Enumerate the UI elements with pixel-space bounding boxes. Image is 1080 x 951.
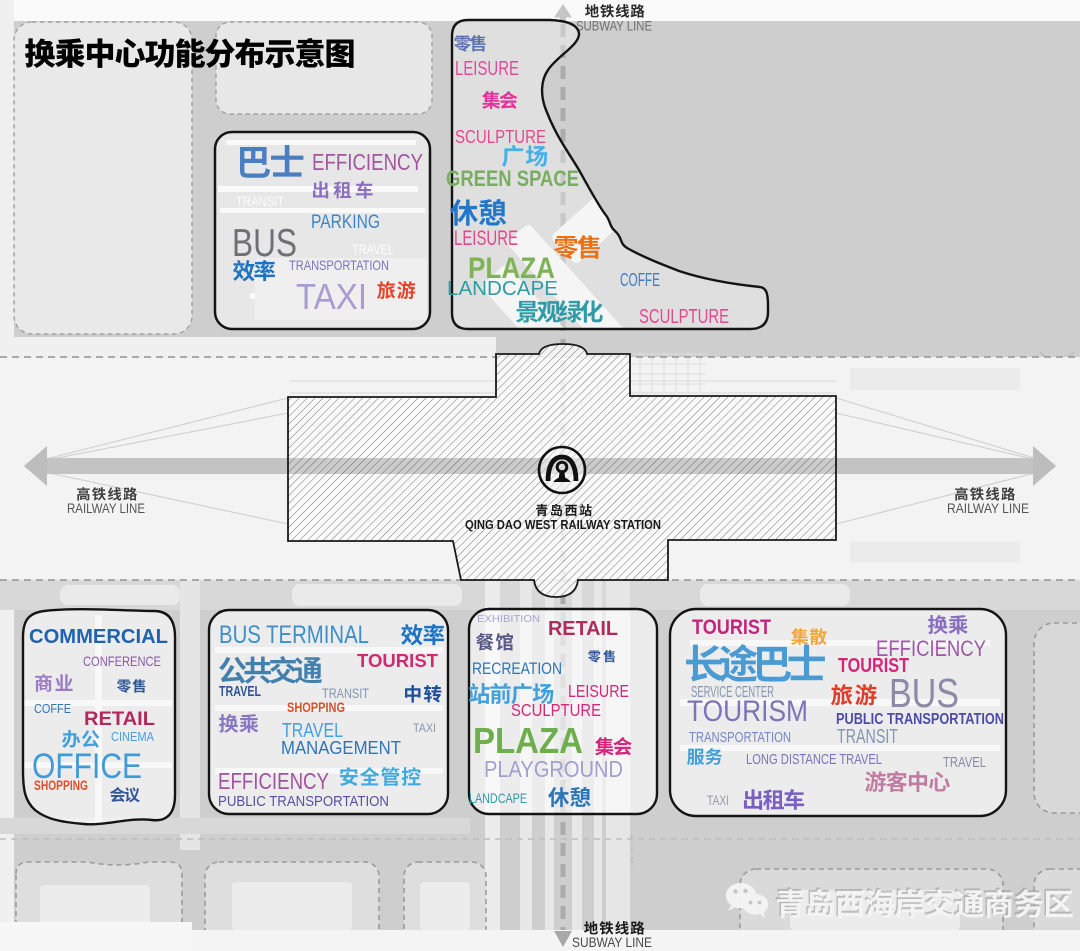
svg-text:SCULPTURE: SCULPTURE	[455, 127, 546, 147]
svg-text:BUS: BUS	[889, 670, 959, 716]
svg-text:COMMERCIAL: COMMERCIAL	[29, 625, 168, 648]
svg-text:EFFICIENCY: EFFICIENCY	[312, 149, 423, 175]
svg-text:LANDCAPE: LANDCAPE	[469, 791, 527, 806]
svg-text:RAILWAY LINE: RAILWAY LINE	[947, 501, 1029, 516]
svg-text:TAXI: TAXI	[707, 792, 729, 808]
svg-text:CONFERENCE: CONFERENCE	[83, 653, 161, 669]
svg-text:RETAIL: RETAIL	[84, 708, 155, 730]
svg-text:CINEMA: CINEMA	[111, 729, 154, 744]
svg-text:TRAVEL: TRAVEL	[352, 241, 394, 257]
svg-text:LANDCAPE: LANDCAPE	[447, 277, 558, 300]
svg-text:SCULPTURE: SCULPTURE	[639, 306, 729, 328]
svg-text:TOURISM: TOURISM	[687, 695, 808, 728]
svg-text:GREEN SPACE: GREEN SPACE	[446, 166, 579, 191]
svg-text:RETAIL: RETAIL	[548, 618, 618, 640]
svg-text:SUBWAY LINE: SUBWAY LINE	[572, 935, 652, 950]
svg-text:LEISURE: LEISURE	[455, 57, 519, 80]
svg-text:TAXI: TAXI	[413, 721, 436, 735]
svg-text:RECREATION: RECREATION	[472, 660, 562, 678]
svg-text:TRANSPORTATION: TRANSPORTATION	[689, 729, 791, 746]
svg-text:PLAYGROUND: PLAYGROUND	[484, 756, 623, 782]
svg-text:SUBWAY LINE: SUBWAY LINE	[576, 19, 652, 34]
svg-text:LEISURE: LEISURE	[568, 681, 629, 701]
svg-text:RAILWAY LINE: RAILWAY LINE	[67, 501, 145, 516]
svg-text:PLAZA: PLAZA	[473, 720, 583, 761]
svg-text:TOURIST: TOURIST	[357, 650, 439, 671]
svg-text:TRAVEL: TRAVEL	[943, 754, 986, 771]
svg-text:EXHIBITION: EXHIBITION	[477, 613, 540, 625]
svg-text:PUBLIC TRANSPORTATION: PUBLIC TRANSPORTATION	[218, 793, 389, 810]
svg-text:TRANSIT: TRANSIT	[236, 194, 284, 209]
svg-text:SHOPPING: SHOPPING	[34, 778, 88, 793]
svg-text:MANAGEMENT: MANAGEMENT	[281, 737, 401, 758]
svg-text:TRANSIT: TRANSIT	[837, 725, 898, 748]
svg-text:SHOPPING: SHOPPING	[287, 700, 345, 715]
svg-text:COFFE: COFFE	[620, 270, 660, 290]
svg-text:COFFE: COFFE	[34, 702, 71, 716]
svg-text:QING DAO WEST RAILWAY STATION: QING DAO WEST RAILWAY STATION	[465, 517, 661, 532]
svg-text:EFFICIENCY: EFFICIENCY	[218, 768, 329, 794]
svg-text:PARKING: PARKING	[311, 211, 380, 233]
svg-text:TOURIST: TOURIST	[692, 616, 771, 639]
svg-text:SCULPTURE: SCULPTURE	[511, 700, 601, 720]
svg-text:BUS TERMINAL: BUS TERMINAL	[219, 621, 369, 649]
svg-text:LONG DISTANCE TRAVEL: LONG DISTANCE TRAVEL	[746, 751, 882, 768]
svg-text:TRANSPORTATION: TRANSPORTATION	[289, 257, 389, 273]
svg-text:BUS: BUS	[232, 222, 297, 265]
svg-text:LEISURE: LEISURE	[454, 226, 518, 250]
svg-text:TAXI: TAXI	[296, 276, 367, 317]
svg-text:TRAVEL: TRAVEL	[219, 683, 261, 700]
svg-text:TRANSIT: TRANSIT	[322, 686, 369, 701]
